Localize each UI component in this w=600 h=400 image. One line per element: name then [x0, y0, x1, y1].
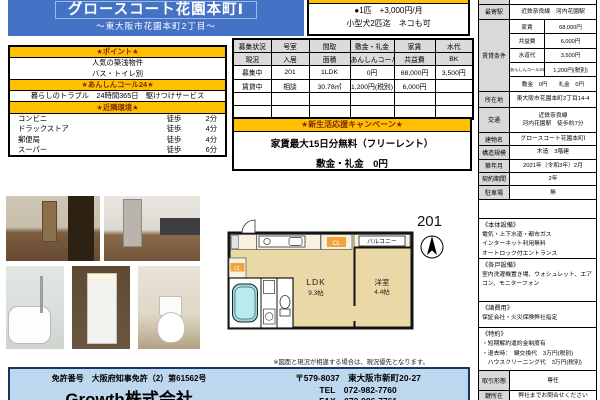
detail-value: グロースコート花園本町Ⅰ [510, 133, 596, 145]
env-walk: 徒歩 [157, 114, 191, 124]
unit-cell: 30.78㎡ [309, 79, 350, 92]
anshin-call-header: ★あんしんコール24★ [10, 79, 225, 91]
unit-cell: 相談 [271, 79, 309, 92]
unit-table-header-row: 募集状況 号室 間取 敷金・礼金 家賃 水代 [233, 39, 473, 53]
closet-label-top: CL [332, 240, 341, 247]
unit-row: 募集中 201 1LDK 0円 68,000円 3,500円 [233, 66, 473, 79]
closet-left: CL [229, 258, 246, 278]
detail-value: 無 [510, 186, 596, 199]
special-terms-item: ・短期解約違約金制度有 [482, 340, 593, 349]
unit-h: あんしんコール24 [350, 53, 394, 66]
photo-kitchen [104, 196, 200, 261]
bedroom-size-label: 4.4帖 [374, 287, 390, 296]
vanity-shape [87, 273, 117, 345]
unit-cell: 募集中 [233, 66, 271, 79]
unit-h: 現況 [233, 53, 271, 66]
door-shape [123, 199, 142, 247]
unit-cell: 1LDK [309, 66, 350, 79]
company-name: Growth株式会社 [10, 385, 248, 400]
unit-cell: 0円 [350, 66, 394, 79]
detail-row-structure: 構造規模 木造 3階建 [479, 146, 596, 159]
terms-key: 共益費 [510, 34, 545, 47]
bedroom-label: 洋室 [375, 277, 390, 287]
kitchen-counter-shape [160, 218, 200, 235]
detail-label: 交通 [479, 108, 510, 132]
environment-header: ★近隣環境★ [10, 101, 225, 113]
detail-label: 鍵所在 [479, 391, 510, 400]
special-terms-item: ・退去時： 鍵交換代 3万円(税別) [482, 350, 593, 359]
special-terms-block: 《特約》 ・短期解約違約金制度有 ・退去時： 鍵交換代 3万円(税別) ハウスク… [479, 328, 596, 371]
detail-value: 2年 [510, 173, 596, 185]
unit-cell: 6,000円 [394, 79, 435, 92]
pet-fee-line: ●1匹 +3,000円/月 [309, 4, 468, 17]
detail-partial-label [479, 0, 510, 4]
special-terms-item: ハウスクリーニング代 3万円(税別) [482, 359, 593, 368]
detail-label: 所在地 [479, 92, 510, 107]
detail-value: 木造 3階建 [510, 146, 596, 158]
detail-label: 駐車場 [479, 186, 510, 199]
terms-row: 水道代 3,500円 [510, 49, 596, 63]
balcony-label: バルコニー [367, 239, 397, 246]
detail-label: 取引形態 [479, 371, 510, 390]
campaign-header: ★新生活応援キャンペーン★ [234, 119, 470, 132]
detail-row-station: 最寄駅 近鉄奈良線 河内花園駅 [479, 5, 596, 20]
detail-label: 最寄駅 [479, 5, 510, 19]
detail-label: 建物名 [479, 133, 510, 145]
detail-row-parking: 駐車場 無 [479, 186, 596, 200]
fees-item: 保証会社・火災保険弊社指定 [482, 314, 593, 323]
env-walk: 徒歩 [157, 124, 191, 134]
unit-cell: 201 [271, 66, 309, 79]
company-fax: FAX 072-986-7761 [248, 396, 468, 400]
env-name: コンビニ [18, 114, 157, 124]
bathtub-shape [8, 306, 51, 345]
terms-val: 68,000円 [545, 20, 596, 33]
floor-plan: 201 CL バルコニー [226, 210, 448, 332]
toilet-bowl-shape [157, 312, 185, 342]
property-title-box: グロースコート花園本町Ⅰ 〜東大阪市花園本町2丁目〜 [8, 0, 304, 36]
ldk-label: LDK [306, 277, 326, 287]
closet-top: CL [321, 235, 352, 250]
unit-cell-empty [271, 92, 309, 105]
unit-cell-empty [350, 92, 394, 105]
unit-row: 賃貸中 相談 30.78㎡ 1,200円(税別) 6,000円 [233, 79, 473, 92]
unit-cell [435, 79, 473, 92]
disclaimer-note: ※図面と現況が相違する場合は、現況優先となります。 [232, 357, 470, 366]
unit-cell-empty [394, 92, 435, 105]
pet-type-line: 小型犬2匹迄 ネコも可 [309, 17, 468, 30]
vanity-light-shape [89, 274, 112, 279]
terms-row: 共益費 6,000円 [510, 34, 596, 48]
env-walk: 徒歩 [157, 145, 191, 155]
env-row: ドラックストア 徒歩 4分 [10, 124, 225, 134]
terms-val: 6,000円 [545, 34, 596, 47]
unit-h: 号室 [271, 39, 309, 53]
detail-value: 近鉄奈良線 河内花園駅 [510, 5, 596, 19]
unit-table-header-row2: 現況 入居 面積 あんしんコール24 共益費 BK [233, 53, 473, 66]
unit-h: 募集状況 [233, 39, 271, 53]
pet-info-box: ●1匹 +3,000円/月 小型犬2匹迄 ネコも可 [307, 0, 470, 36]
ldk-size-label: 9.3帖 [308, 288, 324, 297]
point-item: バス・トイレ別 [10, 69, 225, 79]
equip-unit-block: 《各戸設備》 室内洗濯機置き場、ウォシュレット、エアコン、モニターフォン [479, 259, 596, 302]
env-row: スーパー 徒歩 6分 [10, 145, 225, 155]
company-address: 〒579-8037 東大阪市新町20-27 [248, 373, 468, 385]
detail-row-terms: 賃貸条件 家賃 68,000円 共益費 6,000円 水道代 3,500円 あん… [479, 20, 596, 92]
detail-value: 東大阪市花園本町2丁目14-4 [510, 92, 596, 107]
campaign-line2: 敷金・礼金 0円 [234, 156, 470, 170]
terms-val: 3,500円 [545, 49, 596, 62]
detail-value: 弊社までお問合せください [510, 391, 596, 400]
photo-living-room [6, 196, 100, 261]
fees-title: 《諸費用》 [482, 304, 593, 314]
point-item: 人気の築浅物件 [10, 58, 225, 68]
terms-key: 家賃 [510, 20, 545, 33]
entrance-area [231, 220, 257, 250]
detail-label: 契約期間 [479, 173, 510, 185]
detail-table: 最寄駅 近鉄奈良線 河内花園駅 賃貸条件 家賃 68,000円 共益費 6,00… [478, 0, 597, 400]
terms-key: 水道代 [510, 49, 545, 62]
unit-cell: 68,000円 [394, 66, 435, 79]
equip-main-item: 電気・上下水道・都市ガス [482, 231, 593, 240]
terms-deposit-row: 敷金 0円 礼金 0円 [510, 77, 596, 90]
unit-row-empty [233, 92, 473, 105]
photo-washstand [72, 266, 130, 349]
detail-row-deal-type: 取引形態 専任 [479, 371, 596, 391]
detail-row-built: 築年月 2021年（令和3年）2月 [479, 160, 596, 173]
detail-row-contract: 契約期間 2年 [479, 173, 596, 186]
unit-h: 共益費 [394, 53, 435, 66]
terms-row: 家賃 68,000円 [510, 20, 596, 34]
closet-label-left: CL [234, 266, 241, 272]
terms-subtable: 家賃 68,000円 共益費 6,000円 水道代 3,500円 あんしんコール… [510, 20, 596, 91]
env-name: 郵便局 [18, 135, 157, 145]
equip-main-item: インターネット利用無料 [482, 240, 593, 249]
env-name: スーパー [18, 145, 157, 155]
campaign-box: ★新生活応援キャンペーン★ 家賃最大15日分無料（フリーレント） 敷金・礼金 0… [232, 117, 472, 171]
unit-cell-empty [233, 92, 271, 105]
detail-empty-row [479, 200, 596, 219]
campaign-line1: 家賃最大15日分無料（フリーレント） [234, 136, 470, 150]
env-row: コンビニ 徒歩 2分 [10, 114, 225, 124]
company-contact: 〒579-8037 東大阪市新町20-27 TEL 072-982-7760 F… [248, 369, 468, 400]
env-walk: 徒歩 [157, 135, 191, 145]
unit-cell: 賃貸中 [233, 79, 271, 92]
compass-icon [421, 236, 443, 258]
terms-key: あんしんコール24 [510, 63, 545, 76]
detail-value: 近鉄奈良線 河内花園駅 徒歩約7分 [510, 108, 596, 132]
wet-area [229, 278, 293, 328]
fees-block: 《諸費用》 保証会社・火災保険弊社指定 [479, 302, 596, 329]
washstand-icon [264, 281, 275, 294]
unit-h: 家賃 [394, 39, 435, 53]
equip-main-title: 《本体設備》 [482, 221, 593, 231]
company-box: 免許番号 大阪府知事免許（2）第61562号 Growth株式会社 〒579-8… [8, 367, 470, 400]
unit-cell-empty [309, 92, 350, 105]
property-title: グロースコート花園本町Ⅰ [55, 1, 257, 19]
toilet-icon [280, 296, 290, 309]
shower-bar-shape [40, 276, 43, 313]
equip-main-item: オートロック付エントランス [482, 250, 593, 259]
detail-label: 賃貸条件 [479, 20, 510, 91]
photo-toilet [138, 266, 200, 349]
terms-row: あんしんコール24 1,200円(税別) [510, 63, 596, 77]
company-left: 免許番号 大阪府知事免許（2）第61562号 Growth株式会社 [10, 369, 248, 400]
terms-val: 1,200円(税別) [545, 63, 596, 76]
env-time: 4分 [191, 135, 217, 145]
unit-cell-empty [435, 92, 473, 105]
unit-h: 敷金・礼金 [350, 39, 394, 53]
unit-h: BK [435, 53, 473, 66]
photo-bathroom [6, 266, 64, 349]
unit-cell: 1,200円(税別) [350, 79, 394, 92]
company-tel: TEL 072-982-7760 [248, 385, 468, 397]
unit-h: 間取 [309, 39, 350, 53]
detail-value: 専任 [510, 371, 596, 390]
access-line1: 近鉄奈良線 [539, 112, 568, 120]
detail-label: 築年月 [479, 160, 510, 172]
equip-unit-items: 室内洗濯機置き場、ウォシュレット、エアコン、モニターフォン [482, 271, 593, 290]
unit-cell: 3,500円 [435, 66, 473, 79]
env-time: 6分 [191, 145, 217, 155]
detail-value: 2021年（令和3年）2月 [510, 160, 596, 172]
points-header: ★ポイント★ [10, 47, 225, 58]
property-flyer: グロースコート花園本町Ⅰ 〜東大阪市花園本町2丁目〜 ●1匹 +3,000円/月… [0, 0, 600, 400]
door-shape [42, 201, 57, 242]
env-time: 4分 [191, 124, 217, 134]
anshin-call-item: 暮らしのトラブル 24時間365日 駆けつけサービス [10, 91, 225, 101]
points-table: ★ポイント★ 人気の築浅物件 バス・トイレ別 ★あんしんコール24★ 暮らしのト… [8, 45, 227, 157]
balcony-area: バルコニー [354, 235, 412, 248]
property-subtitle: 〜東大阪市花園本町2丁目〜 [8, 20, 304, 32]
unit-h: 入居 [271, 53, 309, 66]
detail-row-access: 交通 近鉄奈良線 河内花園駅 徒歩約7分 [479, 108, 596, 133]
env-name: ドラックストア [18, 124, 157, 134]
env-row: 郵便局 徒歩 4分 [10, 134, 225, 144]
unit-h: 面積 [309, 53, 350, 66]
detail-row-building: 建物名 グロースコート花園本町Ⅰ [479, 133, 596, 146]
door-shape [68, 196, 94, 261]
equip-main-block: 《本体設備》 電気・上下水道・都市ガス インターネット利用無料 オートロック付エ… [479, 219, 596, 259]
detail-row-address: 所在地 東大阪市花園本町2丁目14-4 [479, 92, 596, 108]
license-number: 免許番号 大阪府知事免許（2）第61562号 [10, 373, 248, 384]
special-terms-title: 《特約》 [482, 330, 593, 340]
unit-table: 募集状況 号室 間取 敷金・礼金 家賃 水代 現況 入居 面積 あんしんコール2… [232, 38, 474, 120]
env-time: 2分 [191, 114, 217, 124]
detail-row-key-location: 鍵所在 弊社までお問合せください [479, 391, 596, 400]
kitchen-area [257, 235, 321, 250]
detail-label: 構造規模 [479, 146, 510, 158]
equip-unit-title: 《各戸設備》 [482, 261, 593, 271]
unit-h: 水代 [435, 39, 473, 53]
floor-plan-room-number: 201 [417, 213, 442, 230]
access-line2: 河内花園駅 徒歩約7分 [522, 120, 583, 128]
